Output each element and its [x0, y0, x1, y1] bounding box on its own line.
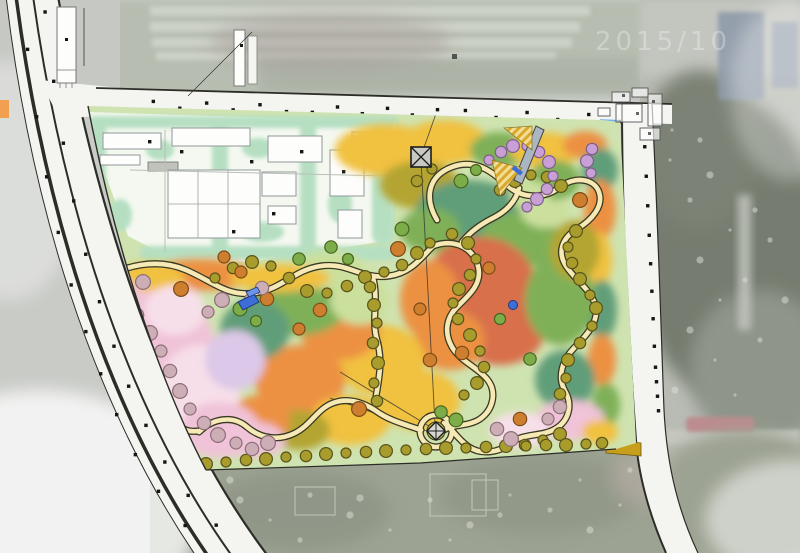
photo-date-watermark: 2015/10: [595, 27, 731, 57]
north-pavilion-marker: [411, 147, 431, 167]
aerial-road-strip: [738, 195, 751, 330]
plan-canvas: 2015/10: [0, 0, 800, 553]
site-plan-svg: 2015/10: [0, 0, 800, 553]
orange-parcel-west: [0, 100, 9, 118]
leader-line-anchor: [452, 54, 457, 59]
aerial-building-red: [686, 417, 754, 432]
pond: [509, 301, 518, 310]
